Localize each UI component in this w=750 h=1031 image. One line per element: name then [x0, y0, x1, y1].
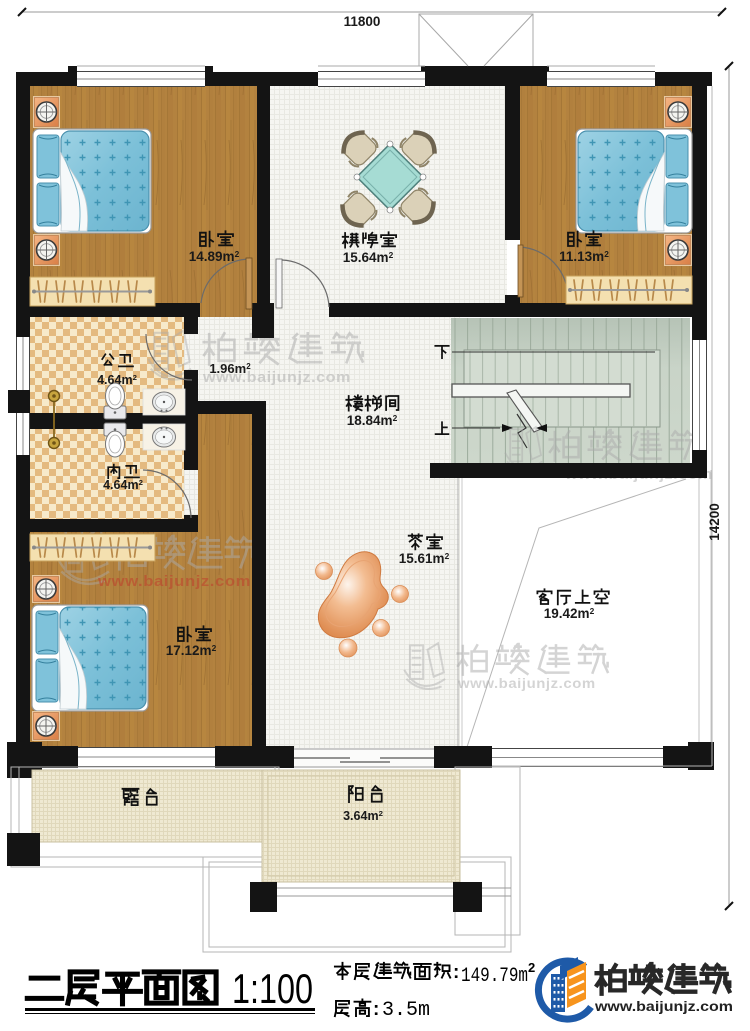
svg-text:15.64m2: 15.64m2: [343, 250, 394, 265]
svg-text:18.84m2: 18.84m2: [347, 413, 398, 428]
svg-text:www.baijunjz.com: www.baijunjz.com: [97, 573, 251, 590]
svg-text:149.79m: 149.79m: [461, 965, 528, 988]
svg-text::: :: [453, 962, 459, 983]
svg-text:1.96m2: 1.96m2: [209, 361, 251, 376]
svg-text:19.42m2: 19.42m2: [544, 606, 595, 621]
svg-text:14.89m2: 14.89m2: [189, 249, 240, 264]
svg-text:17.12m2: 17.12m2: [166, 643, 217, 658]
svg-text:3.64m2: 3.64m2: [343, 809, 383, 823]
svg-text:4.64m2: 4.64m2: [97, 373, 137, 387]
svg-text:11800: 11800: [344, 14, 381, 29]
svg-text:14200: 14200: [707, 503, 722, 541]
svg-text:3.5m: 3.5m: [382, 999, 430, 1022]
svg-text::: :: [373, 999, 379, 1020]
svg-text:11.13m2: 11.13m2: [559, 249, 609, 264]
svg-text:www.baijunjz.com: www.baijunjz.com: [457, 676, 596, 691]
svg-text:1:100: 1:100: [232, 965, 313, 1012]
svg-text:4.64m2: 4.64m2: [103, 478, 143, 492]
svg-text:www.baijunjz.com: www.baijunjz.com: [594, 998, 733, 1014]
svg-text:15.61m2: 15.61m2: [399, 551, 450, 566]
svg-text:2: 2: [528, 960, 535, 975]
